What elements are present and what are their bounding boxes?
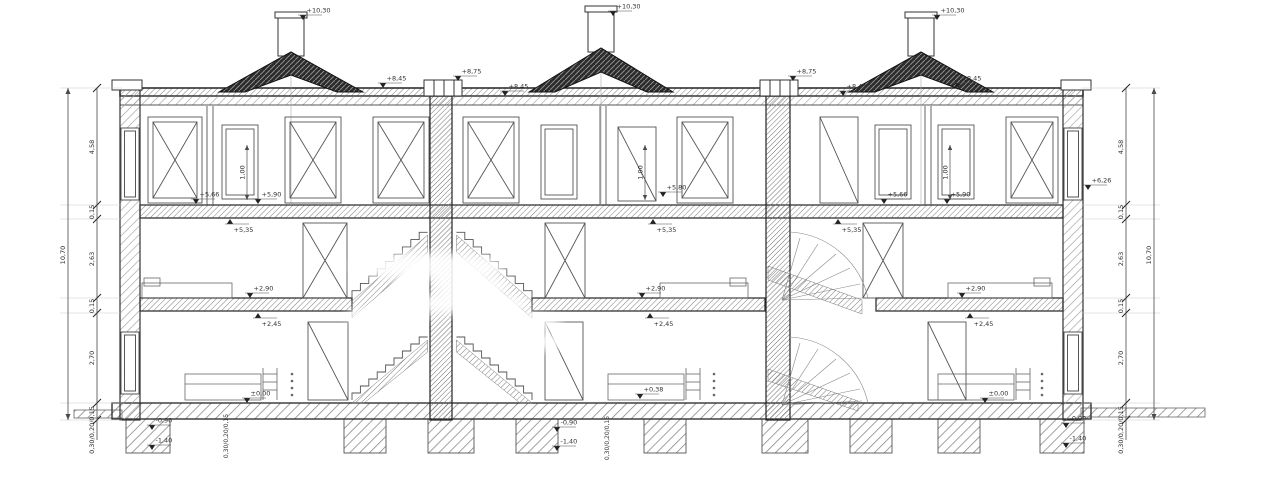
svg-text:10,70: 10,70: [1145, 246, 1153, 265]
level-ground-2: +0,38: [635, 386, 663, 400]
svg-text:+10,30: +10,30: [617, 3, 641, 11]
svg-text:+2,45: +2,45: [974, 320, 994, 328]
level-mid-floor-2: +2,90: [637, 285, 665, 299]
level-ground-3: ±0,00: [980, 390, 1008, 404]
svg-text:+10,30: +10,30: [941, 7, 965, 15]
level-roof-left: +8,45: [378, 75, 406, 89]
stair-flight-unit1-lower: [352, 337, 428, 403]
roof-slab-top: [120, 88, 1083, 96]
svg-text:-1,40: -1,40: [156, 437, 173, 445]
svg-text:-0,90: -0,90: [561, 419, 578, 427]
svg-text:+5,90: +5,90: [262, 191, 282, 199]
svg-text:-0,90: -0,90: [156, 417, 173, 425]
svg-text:-1,40: -1,40: [1070, 435, 1087, 443]
svg-text:0,15: 0,15: [1117, 299, 1125, 313]
svg-text:4,58: 4,58: [1117, 140, 1125, 154]
dim-chain-left: 4,580,152,630,152,700,30/0,20/0,1510,70: [59, 84, 122, 454]
level-mid-floor-1: +2,90: [245, 285, 273, 299]
svg-text:+8,75: +8,75: [797, 68, 817, 76]
svg-text:2,70: 2,70: [1117, 351, 1125, 365]
party-b-coping: [760, 80, 798, 96]
gable-right: [849, 12, 993, 205]
svg-text:2,63: 2,63: [88, 252, 96, 266]
middle-slab-unit2: [532, 298, 765, 311]
dim-chain-right: 4,580,152,630,152,700,30/0,20/0,1510,70: [1081, 84, 1160, 454]
svg-text:+8,75: +8,75: [462, 68, 482, 76]
svg-text:0,30/0,20/0,15: 0,30/0,20/0,15: [604, 416, 611, 460]
svg-text:+2,90: +2,90: [646, 285, 666, 293]
svg-text:+8,45: +8,45: [962, 75, 982, 83]
door: [863, 223, 903, 298]
svg-text:+2,45: +2,45: [654, 320, 674, 328]
level-attic-floor-1b: +5,90: [253, 191, 281, 205]
svg-text:+5,66: +5,66: [888, 191, 908, 199]
svg-text:+0,38: +0,38: [644, 386, 664, 394]
walls: [112, 80, 1091, 420]
left-parapet-coping: [112, 80, 142, 90]
svg-text:+8,45: +8,45: [847, 83, 867, 91]
middle-slab-unit3: [876, 298, 1063, 311]
attic-partition: [925, 106, 931, 205]
door: [303, 223, 347, 298]
svg-text:±0,00: ±0,00: [251, 390, 271, 398]
section-drawing-page: +10,30+10,30+10,30+8,45+8,75+8,45+8,75+8…: [0, 0, 1280, 480]
svg-text:0,30/0,20/0,15: 0,30/0,20/0,15: [223, 414, 230, 458]
level-mid-ceil-1: +2,45: [253, 313, 281, 328]
party-a-coping: [424, 80, 462, 96]
furniture: [142, 278, 1052, 400]
level-attic-floor-3b: +5,90: [942, 191, 970, 205]
svg-text:+8,45: +8,45: [509, 83, 529, 91]
svg-text:+10,30: +10,30: [307, 7, 331, 15]
chimney-mid: [588, 8, 614, 52]
svg-text:+8,45: +8,45: [387, 75, 407, 83]
door: [545, 322, 583, 400]
middle-slab-unit1: [140, 298, 352, 311]
svg-text:10,70: 10,70: [59, 246, 67, 265]
svg-text:0,30/0,20/0,15: 0,30/0,20/0,15: [1117, 406, 1125, 454]
dim-foundation-mid: 0,30/0,20/0,15: [604, 416, 611, 460]
svg-text:+6,26: +6,26: [1092, 177, 1112, 185]
roof-slab-bottom: [120, 96, 1083, 105]
svg-text:-0,90: -0,90: [1070, 415, 1087, 423]
dim-attic-window-1: 1,00: [239, 145, 250, 200]
window: [222, 125, 258, 199]
level-mid-floor-3: +2,90: [957, 285, 985, 299]
attic-slab: [140, 205, 1063, 218]
x-window: [373, 117, 429, 203]
svg-text:+2,45: +2,45: [262, 320, 282, 328]
svg-text:0,30/0,20/0,15: 0,30/0,20/0,15: [88, 406, 96, 454]
door: [928, 322, 966, 400]
x-window: [1006, 117, 1058, 203]
level-right-wall: +6,26: [1083, 177, 1111, 191]
level-mid-ceil-2: +2,45: [645, 313, 673, 328]
attic-windows: [148, 106, 1058, 205]
window: [938, 125, 974, 199]
svg-text:+5,35: +5,35: [234, 226, 254, 234]
level-attic-floor-1a: +5,66: [191, 191, 219, 205]
right-parapet-coping: [1061, 80, 1091, 90]
gable-mid: [529, 6, 673, 205]
level-ground-1: ±0,00: [242, 390, 270, 404]
building-section-drawing: +10,30+10,30+10,30+8,45+8,75+8,45+8,75+8…: [0, 0, 1280, 480]
dim-attic-window-2: 1,00: [637, 145, 648, 200]
level-parapet-a: +8,75: [453, 68, 481, 82]
svg-text:2,63: 2,63: [1117, 252, 1125, 266]
bunk-bed: [185, 368, 293, 400]
ground-slab: [112, 403, 1091, 419]
svg-text:+5,80: +5,80: [667, 184, 687, 192]
svg-text:1,00: 1,00: [239, 165, 247, 179]
svg-text:4,58: 4,58: [88, 140, 96, 154]
level-parapet-b: +8,75: [788, 68, 816, 82]
svg-text:0,15: 0,15: [88, 205, 96, 219]
svg-text:+5,66: +5,66: [200, 191, 220, 199]
svg-text:±0,00: ±0,00: [989, 390, 1009, 398]
bunk-bed: [608, 368, 715, 400]
level-attic-ceil-2b: +5,35: [833, 219, 861, 234]
level-attic-ceil-1: +5,35: [225, 219, 253, 234]
bed: [660, 278, 748, 298]
dim-foundation-left: 0,30/0,20/0,15: [223, 414, 230, 458]
door: [545, 223, 585, 298]
level-attic-ceil-2: +5,35: [648, 219, 676, 234]
svg-text:-1,40: -1,40: [561, 438, 578, 446]
svg-text:+5,35: +5,35: [657, 226, 677, 234]
x-window: [148, 117, 202, 203]
svg-text:+2,90: +2,90: [254, 285, 274, 293]
window: [541, 125, 577, 199]
svg-text:1,00: 1,00: [637, 165, 645, 179]
svg-text:+5,90: +5,90: [951, 191, 971, 199]
bed: [142, 278, 232, 298]
svg-text:0,15: 0,15: [88, 299, 96, 313]
floor-slabs: [112, 88, 1091, 419]
window: [875, 125, 911, 199]
chimney-right: [908, 14, 934, 56]
chimney-left: [278, 14, 304, 56]
level-attic-floor-3a: +5,66: [879, 191, 907, 205]
svg-text:2,70: 2,70: [88, 351, 96, 365]
x-window: [285, 117, 341, 203]
x-window: [463, 117, 519, 203]
svg-text:1,00: 1,00: [942, 165, 950, 179]
svg-text:0,15: 0,15: [1117, 205, 1125, 219]
attic-door: [618, 127, 656, 201]
svg-text:+2,90: +2,90: [966, 285, 986, 293]
svg-text:+5,35: +5,35: [842, 226, 862, 234]
level-mid-ceil-3: +2,45: [965, 313, 993, 328]
door: [308, 322, 348, 400]
attic-door: [820, 117, 858, 203]
